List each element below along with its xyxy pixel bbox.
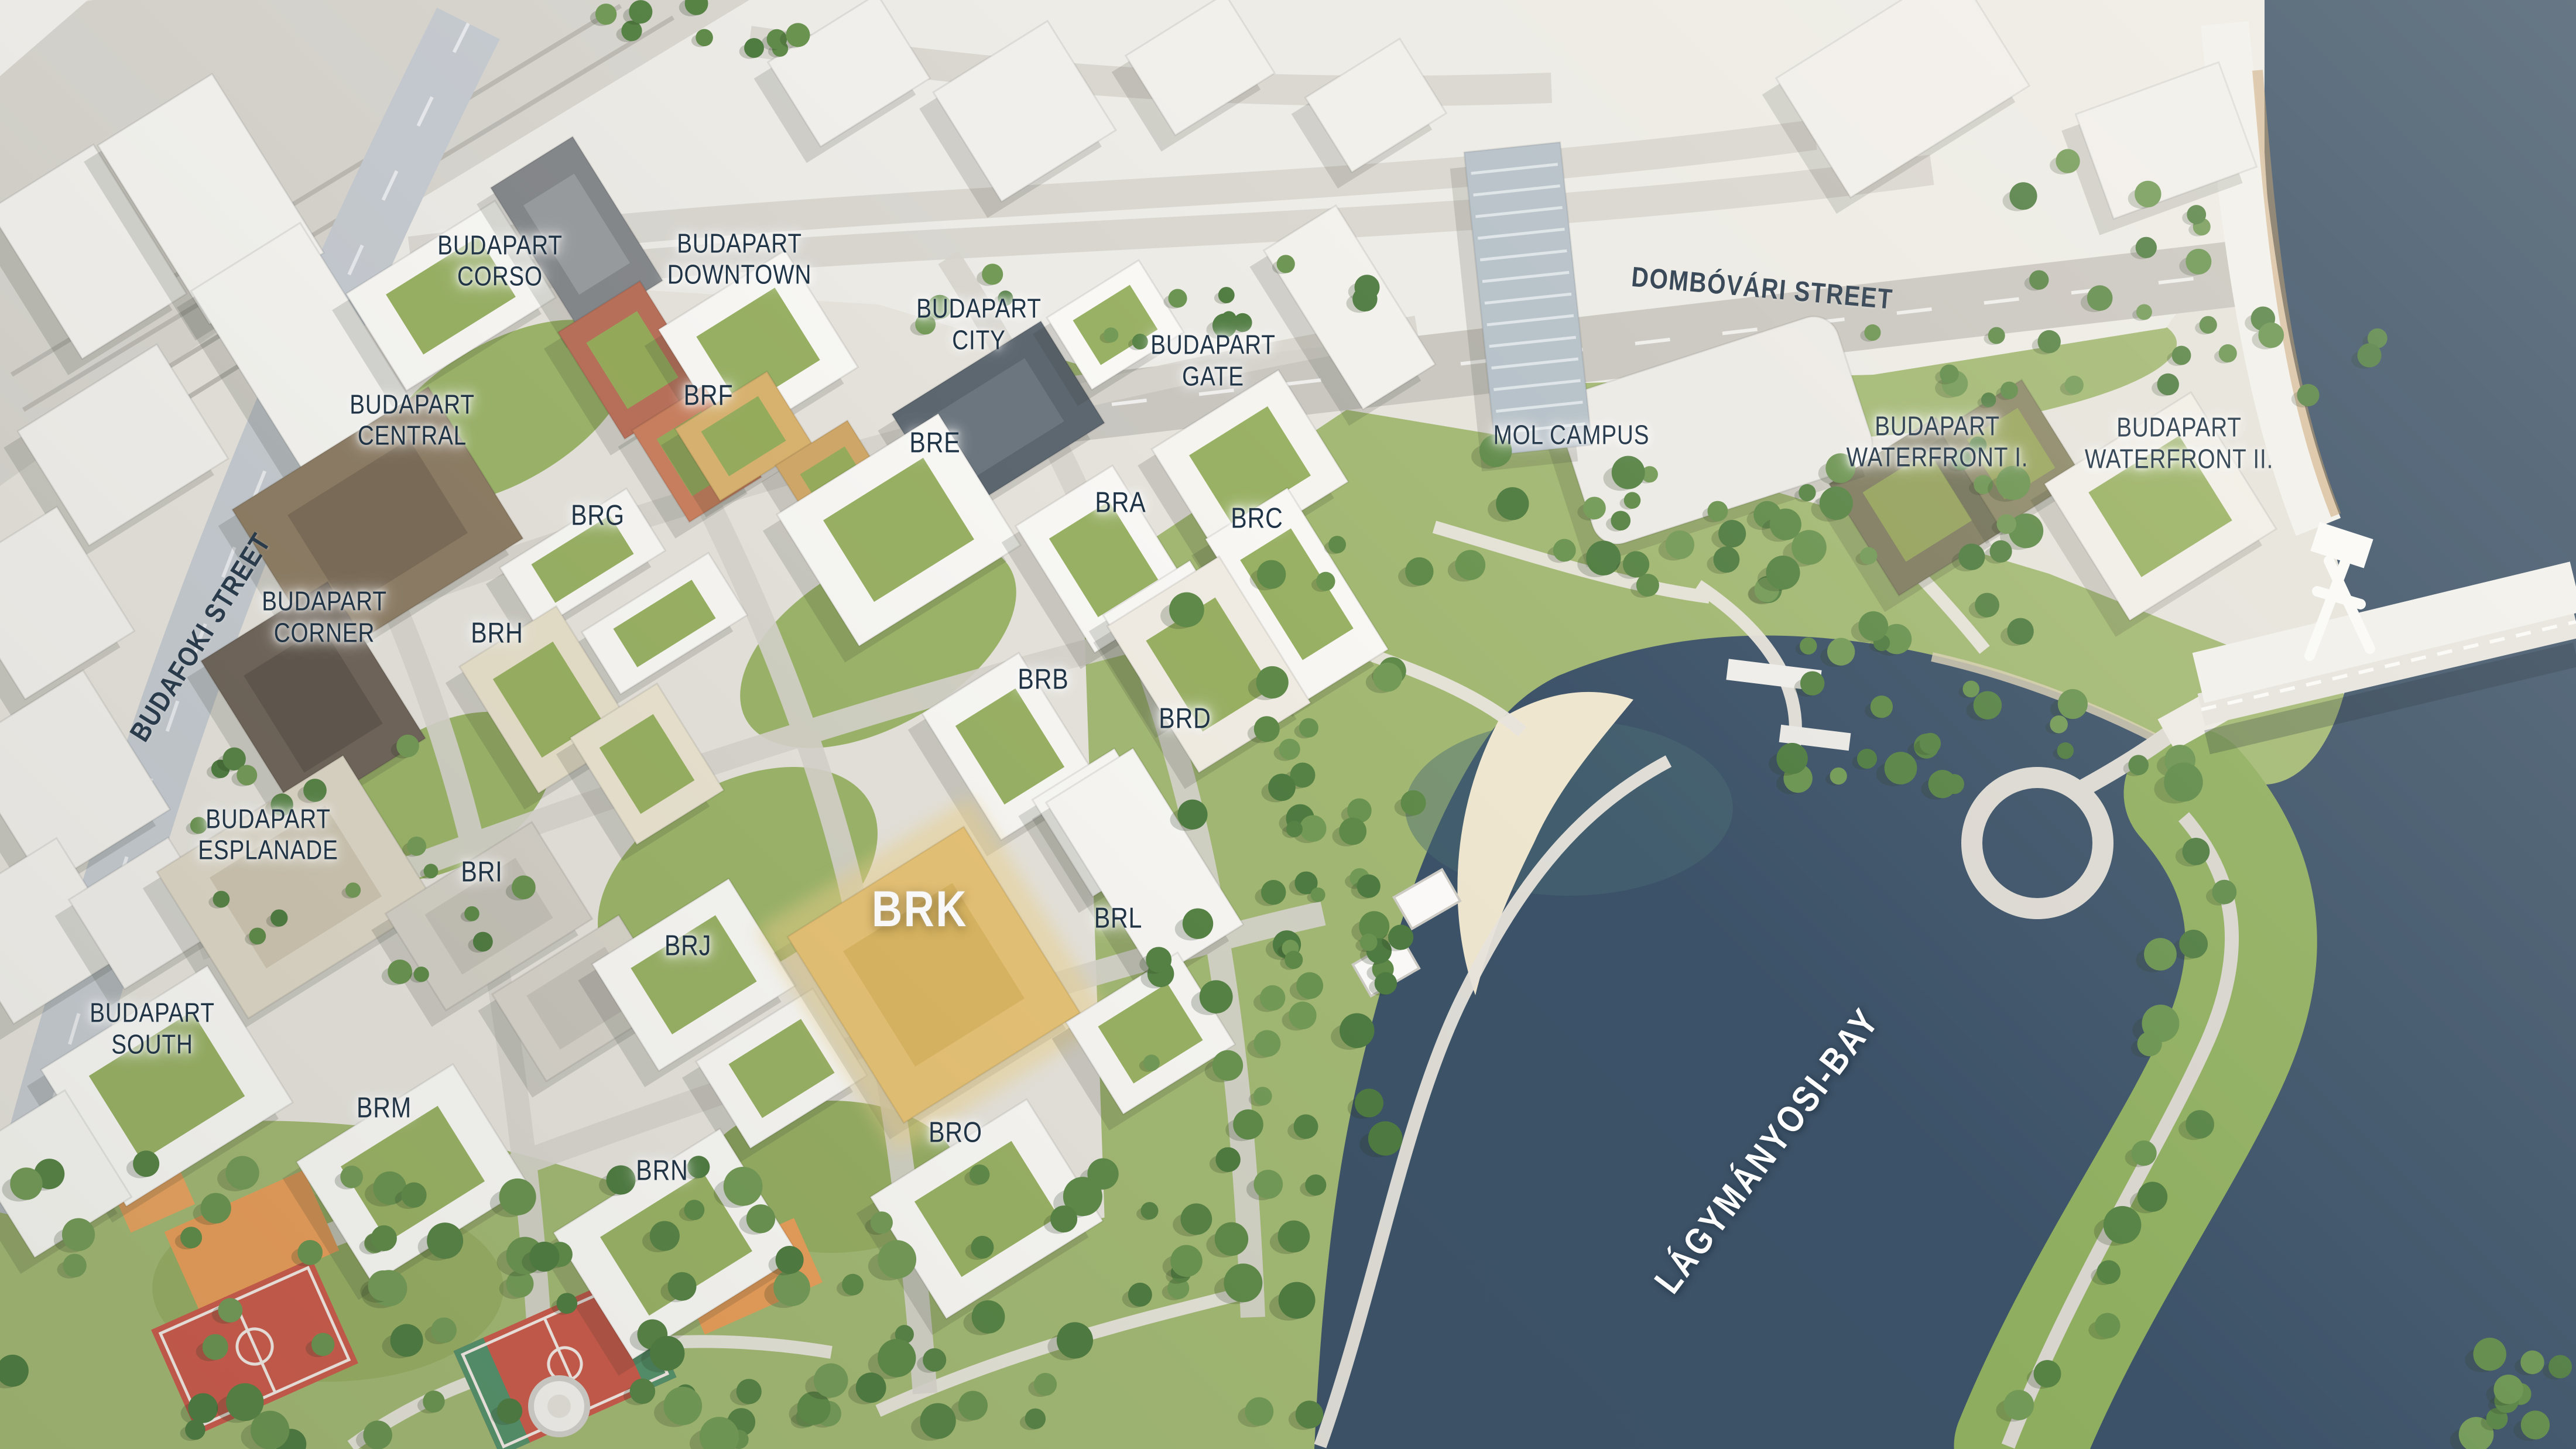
map-label-line: BUDAPART — [2085, 412, 2273, 443]
map-label-bre[interactable]: BRE — [910, 427, 961, 460]
labels-layer: BUDAPARTCORSOBUDAPARTDOWNTOWNBUDAPARTCIT… — [0, 0, 2576, 1449]
map-label-line: GATE — [1151, 361, 1276, 392]
map-label-budapart-city[interactable]: BUDAPARTCITY — [916, 293, 1042, 356]
map-label-brk[interactable]: BRK — [872, 881, 968, 939]
map-label-line: BUDAPART — [437, 229, 563, 261]
map-label-line: ESPLANADE — [198, 835, 338, 866]
map-label-line: BRJ — [664, 930, 711, 963]
map-label-brg[interactable]: BRG — [571, 499, 625, 533]
map-label-line: WATERFRONT I. — [1846, 442, 2028, 473]
map-label-bra[interactable]: BRA — [1095, 486, 1146, 519]
masterplan-map: BUDAPARTCORSOBUDAPARTDOWNTOWNBUDAPARTCIT… — [0, 0, 2576, 1449]
map-label-line: DOMBÓVÁRI STREET — [1630, 261, 1894, 316]
map-label-budapart-waterfront-i[interactable]: BUDAPARTWATERFRONT I. — [1846, 411, 2028, 474]
map-label-line: BUDAPART — [1846, 411, 2028, 442]
map-label-line: BRB — [1018, 663, 1068, 696]
map-label-line: BUDAPART — [667, 228, 811, 259]
map-label-line: MOL CAMPUS — [1493, 419, 1650, 450]
map-label-line: CITY — [916, 324, 1042, 355]
map-label-budapart-corner[interactable]: BUDAPARTCORNER — [262, 586, 388, 649]
map-label-line: BRI — [461, 856, 502, 889]
map-label-line: LÁGYMÁNYOSI-BAY — [1646, 999, 1888, 1301]
map-label-line: BRM — [357, 1092, 412, 1125]
map-label-line: BRG — [571, 499, 625, 533]
map-label-line: BUDAPART — [350, 389, 475, 420]
map-label-dombovari-street: DOMBÓVÁRI STREET — [1630, 261, 1894, 316]
map-label-line: BUDAPART — [1151, 330, 1276, 361]
map-label-brf[interactable]: BRF — [684, 379, 734, 412]
map-label-brn[interactable]: BRN — [636, 1154, 688, 1187]
map-label-budapart-south[interactable]: BUDAPARTSOUTH — [90, 998, 215, 1060]
map-label-budapart-gate[interactable]: BUDAPARTGATE — [1151, 330, 1276, 392]
map-label-line: BUDAPART — [198, 803, 338, 834]
map-label-budapart-esplanade[interactable]: BUDAPARTESPLANADE — [198, 803, 338, 866]
map-label-lagymanyosi-bay: LÁGYMÁNYOSI-BAY — [1646, 999, 1888, 1301]
map-label-line: BRE — [910, 427, 961, 460]
map-label-line: BUDAFOKI STREET — [124, 527, 278, 748]
map-label-budapart-waterfront-ii[interactable]: BUDAPARTWATERFRONT II. — [2085, 412, 2273, 475]
map-label-budafoki-street: BUDAFOKI STREET — [124, 527, 278, 748]
map-label-line: BRO — [929, 1116, 983, 1150]
map-label-line: BUDAPART — [916, 293, 1042, 324]
map-label-line: WATERFRONT II. — [2085, 443, 2273, 474]
map-label-line: BRL — [1094, 902, 1142, 936]
map-label-brd[interactable]: BRD — [1159, 702, 1211, 735]
map-label-budapart-corso[interactable]: BUDAPARTCORSO — [437, 229, 563, 292]
map-label-line: BRK — [872, 881, 968, 939]
map-label-bro[interactable]: BRO — [929, 1116, 983, 1150]
map-label-line: CORSO — [437, 261, 563, 292]
map-label-line: DOWNTOWN — [667, 259, 811, 290]
map-label-line: BRF — [684, 379, 734, 412]
map-label-line: BUDAPART — [262, 586, 388, 617]
map-label-line: BRA — [1095, 486, 1146, 519]
map-label-brc[interactable]: BRC — [1231, 502, 1283, 536]
map-label-brm[interactable]: BRM — [357, 1092, 412, 1125]
map-label-bri[interactable]: BRI — [461, 856, 502, 889]
map-label-mol-campus: MOL CAMPUS — [1493, 419, 1650, 450]
map-label-brl[interactable]: BRL — [1094, 902, 1142, 936]
map-label-brb[interactable]: BRB — [1018, 663, 1068, 696]
map-label-line: BRN — [636, 1154, 688, 1187]
map-label-budapart-downtown[interactable]: BUDAPARTDOWNTOWN — [667, 228, 811, 291]
map-label-line: BRC — [1231, 502, 1283, 536]
map-label-brj[interactable]: BRJ — [664, 930, 711, 963]
map-label-budapart-central[interactable]: BUDAPARTCENTRAL — [350, 389, 475, 451]
map-label-line: BUDAPART — [90, 998, 215, 1029]
map-label-line: CORNER — [262, 617, 388, 648]
map-label-line: BRH — [471, 616, 523, 650]
map-label-line: BRD — [1159, 702, 1211, 735]
map-label-line: CENTRAL — [350, 420, 475, 451]
map-label-line: SOUTH — [90, 1029, 215, 1060]
map-label-brh[interactable]: BRH — [471, 616, 523, 650]
